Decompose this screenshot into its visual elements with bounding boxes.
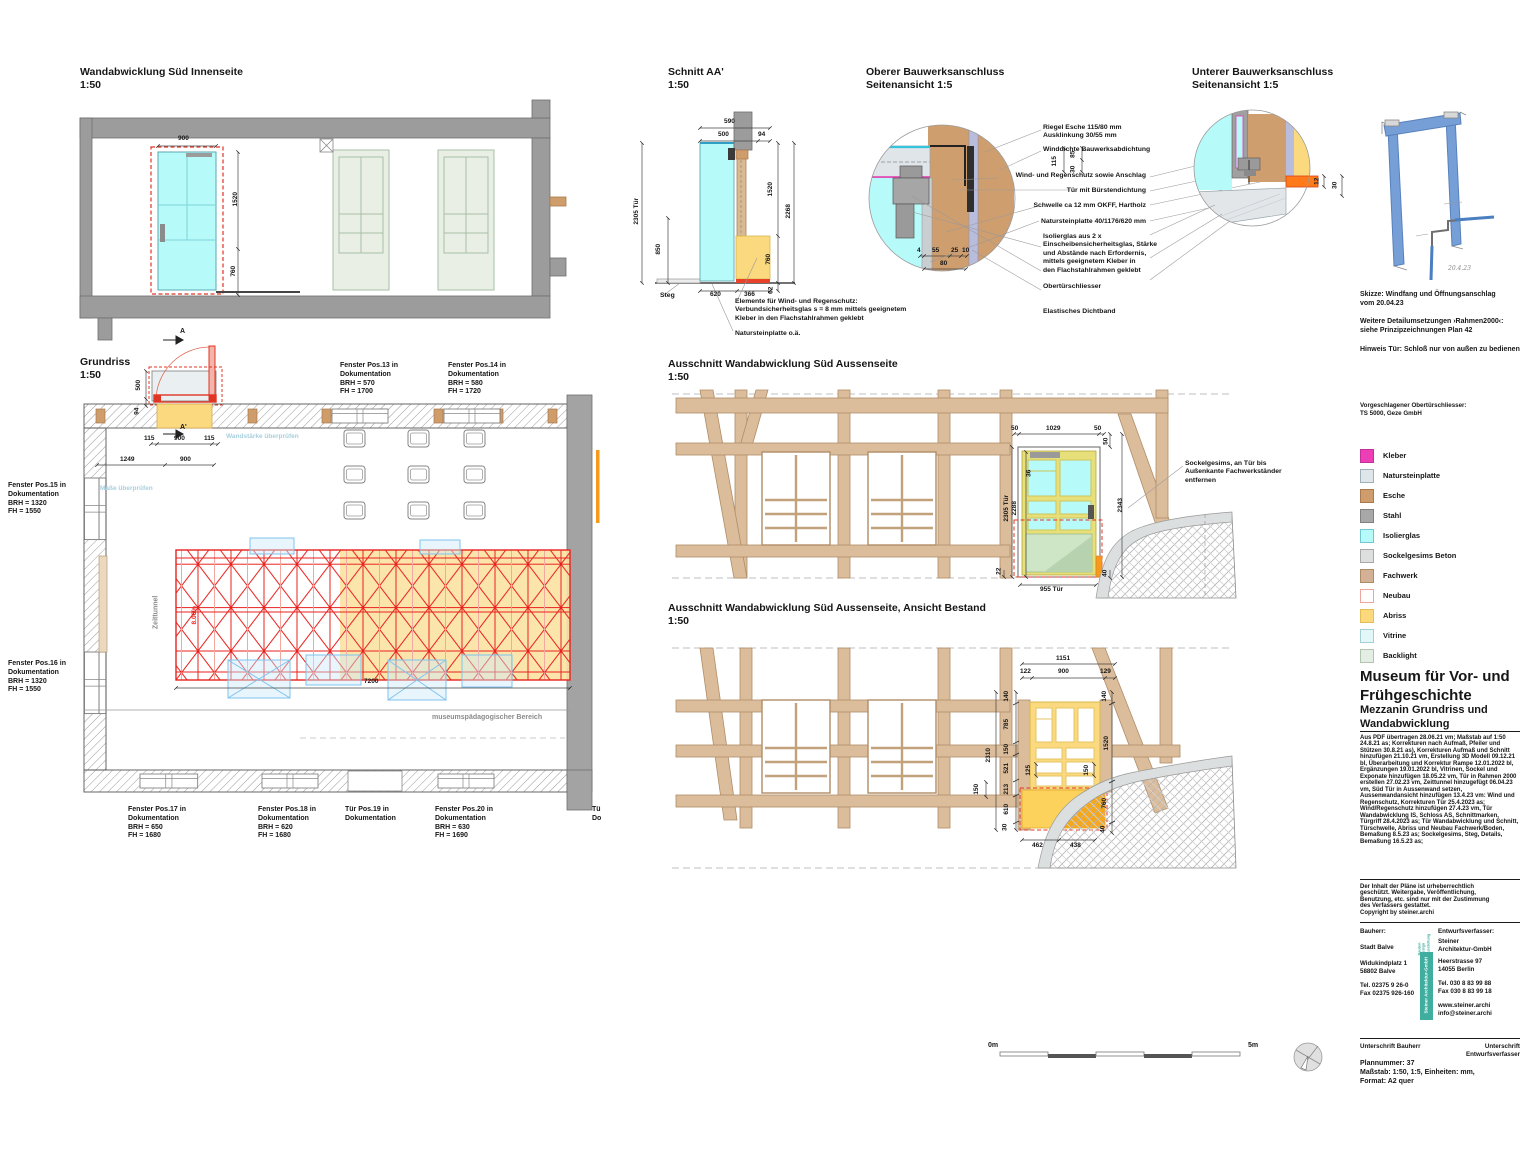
dim-a2-900: 900 — [1058, 669, 1069, 676]
dim-plan-115l: 115 — [144, 436, 155, 443]
dim-a2-150b: 150 — [974, 784, 981, 795]
divider — [1360, 1038, 1520, 1039]
callout-windregen: Wind- und Regenschutz sowie Anschlag — [986, 172, 1146, 180]
dim-a1-36: 36 — [1026, 470, 1033, 477]
label-steg: Steg — [660, 292, 675, 300]
grundriss-plan — [84, 336, 600, 810]
aussenseite-bestand — [672, 648, 1236, 868]
dim-ober-4: 4 — [917, 248, 921, 255]
logo-bar: Steiner Architektur-GmbH — [1420, 952, 1433, 1020]
sheet-title: Museum für Vor- und Frühgeschichte — [1360, 668, 1510, 706]
label-fenster-pos20: Fenster Pos.20 in Dokumentation BRH = 63… — [435, 806, 493, 841]
note-weitere-details: Weitere Detailumsetzungen ›Rahmen2000‹: … — [1360, 318, 1503, 336]
title-oberer: Oberer Bauwerksanschluss Seitenansicht 1… — [866, 66, 1004, 91]
dim-a2-30: 30 — [1002, 824, 1009, 831]
dim-unter-12: 12 — [1314, 178, 1321, 185]
revision-history: Aus PDF übertragen 28.06.21 vm; Maßstab … — [1360, 735, 1520, 845]
dim-schnitt-2305: 2305 Tür — [634, 198, 641, 225]
bauherr-address: Widukindplatz 1 58802 Balve — [1360, 960, 1407, 976]
legend-item: Vitrine — [1360, 626, 1520, 646]
legend-item: Neubau — [1360, 586, 1520, 606]
aussenseite-neu — [672, 390, 1236, 598]
dim-a2-40: 40 — [1100, 826, 1107, 833]
dim-a1-22: 22 — [996, 568, 1003, 575]
label-natursteinplatte: Natursteinplatte o.ä. — [735, 330, 800, 338]
innenseite-elevation — [80, 100, 566, 340]
dim-schnitt-850: 850 — [656, 244, 663, 255]
note-masse: Maße überprüfen — [100, 486, 153, 493]
legend-item: Sockelgesims Beton — [1360, 546, 1520, 566]
dim-a2-150c: 150 — [1084, 765, 1091, 776]
dim-schnitt-2268: 2268 — [786, 204, 793, 218]
callout-naturstein: Natursteinplatte 40/1176/620 mm — [986, 218, 1146, 226]
dim-schnitt-760: 760 — [766, 254, 773, 265]
dim-plan-900b: 900 — [180, 457, 191, 464]
dim-schnitt-94: 94 — [758, 132, 765, 139]
dim-a2-1520: 1520 — [1104, 736, 1111, 750]
dim-a2-521: 521 — [1004, 763, 1011, 774]
divider — [1360, 731, 1520, 732]
legend-label: Vitrine — [1383, 632, 1406, 640]
dim-plan-900a: 900 — [174, 436, 185, 443]
divider — [1360, 879, 1520, 880]
label-fenster-pos17: Fenster Pos.17 in Dokumentation BRH = 65… — [128, 806, 186, 841]
dim-plan-1249: 1249 — [120, 457, 134, 464]
dim-schnitt-62: 62 — [768, 287, 775, 294]
legend-label: Fachwerk — [1383, 572, 1418, 580]
entwurf-web: www.steiner.archi info@steiner.archi — [1438, 1002, 1492, 1018]
label-fenster-pos15: Fenster Pos.15 in Dokumentation BRH = 13… — [8, 482, 66, 517]
title-schnitt: Schnitt AA' 1:50 — [668, 66, 724, 91]
legend-item: Stahl — [1360, 506, 1520, 526]
legend-swatch-abriss — [1360, 609, 1374, 623]
callout-obertuerschliesser: Obertürschliesser — [1043, 283, 1101, 291]
title-aussen2: Ausschnitt Wandabwicklung Süd Aussenseit… — [668, 602, 986, 627]
dim-a1-50v: 50 — [1103, 438, 1110, 445]
zeittunnel-truss — [176, 538, 570, 700]
label-windschutz-elemente: Elemente für Wind- und Regenschutz: Verb… — [735, 298, 906, 323]
dim-schnitt-590: 590 — [724, 119, 735, 126]
legend: Kleber Natursteinplatte Esche Stahl Isol… — [1360, 446, 1520, 666]
title-grundriss: Grundriss 1:50 — [80, 356, 130, 381]
legend-swatch-kleber — [1360, 449, 1374, 463]
dim-a2-213: 213 — [1004, 784, 1011, 795]
label-tuer-pos19: Tür Pos.19 in Dokumentation — [345, 806, 396, 824]
windfang-sketch — [1382, 112, 1494, 280]
divider — [1360, 922, 1520, 923]
dim-a2-760: 760 — [1102, 798, 1109, 809]
callout-schwelle: Schwelle ca 12 mm OKFF, Hartholz — [986, 202, 1146, 210]
dim-unter-30: 30 — [1332, 182, 1339, 189]
note-obertuerschliesser-vorschlag: Vorgeschlagener Obertürschliesser: TS 50… — [1360, 402, 1467, 418]
legend-swatch-neubau — [1360, 589, 1374, 603]
scalebar-end: 5m — [1248, 1042, 1258, 1051]
label-tuer-clipped: Tü Do — [592, 806, 603, 824]
dim-a2-129: 129 — [1100, 669, 1111, 676]
dim-a2-140l: 140 — [1004, 691, 1011, 702]
dim-ober-10: 10 — [962, 248, 969, 255]
dim-ober-115: 115 — [1052, 156, 1059, 167]
plan-sheet: Wandabwicklung Süd Innenseite 1:50 Grund… — [0, 0, 1536, 1152]
dim-plan-94: 94 — [134, 408, 141, 415]
dim-a2-610: 610 — [1004, 804, 1011, 815]
dim-plan-7200: 7200 — [364, 679, 378, 686]
title-innenseite: Wandabwicklung Süd Innenseite 1:50 — [80, 66, 243, 91]
legend-swatch-stahl — [1360, 509, 1374, 523]
callout-isolierglas: Isolierglas aus 2 x Einscheibensicherhei… — [1043, 233, 1157, 275]
logo-name: Steiner Architektur-GmbH — [1425, 954, 1430, 1016]
dim-a2-2310: 2310 — [986, 748, 993, 762]
entwurf-phone: Tel. 030 8 83 99 88 Fax 030 8 83 99 18 — [1438, 980, 1492, 996]
note-zeittunnel: Zeittunnel — [152, 596, 161, 629]
dim-a1-50l: 50 — [1011, 426, 1018, 433]
title-aussen1: Ausschnitt Wandabwicklung Süd Aussenseit… — [668, 358, 898, 383]
dim-a2-785: 785 — [1004, 719, 1011, 730]
dim-a2-438: 438 — [1070, 843, 1081, 850]
note-skizze: Skizze: Windfang und Öffnungsanschlag vo… — [1360, 291, 1496, 309]
dim-a2-150a: 150 — [1004, 744, 1011, 755]
scalebar-start: 0m — [988, 1042, 998, 1051]
dim-ober-55: 55 — [932, 248, 939, 255]
chair-grid — [344, 430, 485, 519]
legend-label: Sockelgesims Beton — [1383, 552, 1456, 560]
title-unterer: Unterer Bauwerksanschluss Seitenansicht … — [1192, 66, 1333, 91]
legend-swatch-isolierglas — [1360, 529, 1374, 543]
callout-riegel: Riegel Esche 115/80 mm Ausklinkung 30/55… — [1043, 124, 1122, 141]
dim-a2-462: 462 — [1032, 843, 1043, 850]
note-hinweis-tuer: Hinweis Tür: Schloß nur von außen zu bed… — [1360, 346, 1520, 355]
dim-a1-1029: 1029 — [1046, 426, 1060, 433]
legend-label: Backlight — [1383, 652, 1417, 660]
label-fenster-pos13: Fenster Pos.13 in Dokumentation BRH = 57… — [340, 362, 398, 397]
note-museumsbereich: museumspädagogischer Bereich — [432, 714, 542, 723]
dim-a1-2343: 2343 — [1118, 498, 1125, 512]
dim-door-lower: 760 — [231, 266, 238, 277]
dim-a1-955: 955 Tür — [1040, 587, 1063, 594]
callout-dichtband: Elastisches Dichtband — [1043, 308, 1116, 316]
dim-a2-140r: 140 — [1102, 691, 1109, 702]
entwurf-address: Heerstrasse 97 14055 Berlin — [1438, 958, 1482, 974]
logo-badge: Bauten Design Ausstellung Steiner Archit… — [1420, 924, 1434, 1024]
label-fenster-pos14: Fenster Pos.14 in Dokumentation BRH = 58… — [448, 362, 506, 397]
legend-label: Natursteinplatte — [1383, 472, 1440, 480]
legend-swatch-fachwerk — [1360, 569, 1374, 583]
legend-swatch-esche — [1360, 489, 1374, 503]
callout-winddicht: Winddichte Bauwerksabdichtung — [1043, 146, 1150, 154]
north-compass — [1294, 1043, 1322, 1071]
dim-ober-80: 80 — [940, 261, 947, 268]
dim-a2-122: 122 — [1020, 669, 1031, 676]
entwurf-label: Entwurfsverfasser: — [1438, 928, 1494, 936]
legend-item: Abriss — [1360, 606, 1520, 626]
legend-item: Natursteinplatte — [1360, 466, 1520, 486]
copyright-note: Der Inhalt der Pläne ist urheberrechtlic… — [1360, 884, 1520, 916]
dim-a1-2305: 2305 Tür — [1004, 495, 1011, 522]
legend-label: Neubau — [1383, 592, 1411, 600]
label-fenster-pos18: Fenster Pos.18 in Dokumentation BRH = 62… — [258, 806, 316, 841]
signature-entwurf: Unterschrift Entwurfsverfasser — [1440, 1043, 1520, 1059]
dim-ober-25: 25 — [951, 248, 958, 255]
dim-schnitt-500: 500 — [718, 132, 729, 139]
dim-a1-2288: 2288 — [1012, 501, 1019, 515]
legend-item: Esche — [1360, 486, 1520, 506]
dim-a1-40: 40 — [1102, 570, 1109, 577]
section-mark-a-prime: A' — [180, 424, 187, 433]
bauherr-label: Bauherr: — [1360, 928, 1386, 936]
legend-swatch-sockelgesims — [1360, 549, 1374, 563]
legend-label: Kleber — [1383, 452, 1406, 460]
legend-swatch-natursteinplatte — [1360, 469, 1374, 483]
legend-item: Fachwerk — [1360, 566, 1520, 586]
legend-label: Esche — [1383, 492, 1405, 500]
legend-item: Backlight — [1360, 646, 1520, 666]
label-fenster-pos16: Fenster Pos.16 in Dokumentation BRH = 13… — [8, 660, 66, 695]
dim-schnitt-1520: 1520 — [768, 182, 775, 196]
dim-schnitt-620: 620 — [710, 292, 721, 299]
note-wandstaerke: Wandstärke überprüfen — [226, 434, 299, 441]
signature-bauherr: Unterschrift Bauherr — [1360, 1043, 1421, 1051]
plan-info: Plannummer: 37 Maßstab: 1:50, 1:5, Einhe… — [1360, 1060, 1475, 1086]
dim-a2-125: 125 — [1026, 765, 1033, 776]
legend-label: Isolierglas — [1383, 532, 1420, 540]
sketch-handwriting: 20.4.23 — [1448, 266, 1471, 272]
legend-item: Kleber — [1360, 446, 1520, 466]
legend-swatch-backlight — [1360, 649, 1374, 663]
dim-plan-115r: 115 — [204, 436, 215, 443]
legend-label: Stahl — [1383, 512, 1401, 520]
callout-buersten: Tür mit Bürstendichtung — [986, 187, 1146, 195]
drawing-linework — [0, 0, 1536, 1152]
dim-a1-50r: 50 — [1094, 426, 1101, 433]
section-mark-a: A — [180, 328, 185, 337]
sheet-subtitle: Mezzanin Grundriss und Wandabwicklung — [1360, 704, 1488, 732]
bauherr-phone: Tel. 02375 9 26-0 Fax 02375 926-160 — [1360, 982, 1414, 998]
unterer-detail — [1150, 110, 1342, 280]
note-slope: 8.06% — [192, 606, 199, 624]
dim-door-width: 900 — [178, 136, 189, 143]
legend-item: Isolierglas — [1360, 526, 1520, 546]
legend-swatch-vitrine — [1360, 629, 1374, 643]
dim-a2-1151: 1151 — [1056, 656, 1070, 663]
scale-bar — [1000, 1052, 1240, 1058]
bauherr-name: Stadt Balve — [1360, 944, 1394, 952]
legend-label: Abriss — [1383, 612, 1406, 620]
entwurf-name: Steiner Architektur-GmbH — [1438, 938, 1492, 954]
label-sockelgesims: Sockelgesims, an Tür bis Außenkante Fach… — [1185, 460, 1282, 485]
dim-plan-500: 500 — [136, 380, 143, 391]
dim-door-glass: 1520 — [233, 192, 240, 206]
